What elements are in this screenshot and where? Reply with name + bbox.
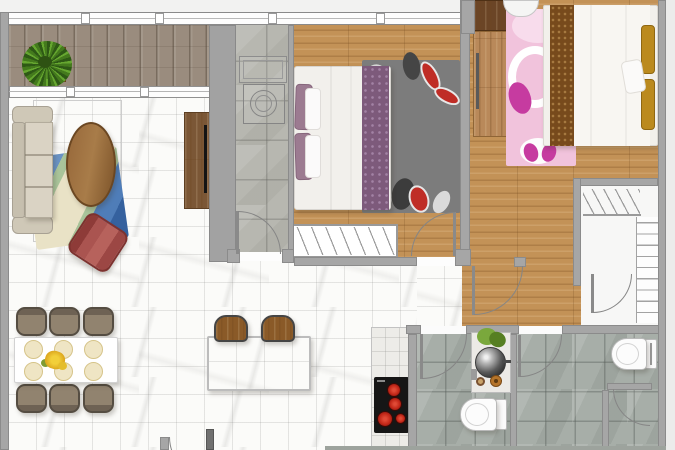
wall-balcony-window bbox=[9, 86, 236, 98]
toilet-1-seat bbox=[465, 403, 489, 426]
wall-closet-top bbox=[573, 178, 658, 186]
burner-2 bbox=[388, 397, 402, 411]
bed2-fold-1 bbox=[590, 5, 592, 146]
bed1-runner bbox=[362, 66, 389, 210]
cooktop-knobs bbox=[377, 380, 385, 382]
bedroom2-wardrobe-handle bbox=[476, 53, 479, 109]
wall-south-c bbox=[562, 325, 666, 334]
balcony-mullion-2 bbox=[140, 87, 149, 97]
closet-hanging-hatch bbox=[583, 189, 640, 214]
bar-chair-1 bbox=[214, 315, 248, 342]
coffee-table bbox=[66, 122, 116, 207]
closet-shelves bbox=[636, 217, 658, 323]
plate-6 bbox=[84, 362, 103, 381]
wall-balcony-window-midline bbox=[9, 91, 236, 92]
burner-3 bbox=[377, 411, 393, 427]
outside-right bbox=[666, 0, 675, 450]
plate-4 bbox=[24, 362, 43, 381]
burner-1 bbox=[387, 383, 401, 397]
sofa-cushion-line-1 bbox=[25, 154, 53, 156]
entrance-jamb bbox=[160, 437, 169, 450]
dining-chair-6 bbox=[83, 384, 114, 413]
plate-3 bbox=[84, 340, 103, 359]
window-mullion-2 bbox=[155, 13, 164, 24]
bed2-pillow-gold-1 bbox=[641, 25, 655, 74]
door-arc-entrance bbox=[169, 437, 211, 450]
dining-chair-2 bbox=[49, 307, 80, 336]
balcony-mullion-1 bbox=[66, 87, 75, 97]
dining-chair-5 bbox=[49, 384, 80, 413]
vanity-soap bbox=[471, 369, 477, 380]
bed1-fold-1 bbox=[330, 66, 332, 210]
closet-rail bbox=[583, 214, 641, 216]
bed1-fold-2 bbox=[350, 66, 352, 210]
threshold-bedroom1 bbox=[417, 257, 455, 266]
wall-closet-left bbox=[573, 178, 581, 286]
toilet-2-tank-line bbox=[650, 343, 652, 365]
threshold-bathroom1 bbox=[421, 326, 466, 334]
bed2-runner bbox=[550, 5, 574, 146]
floor-hall-marble bbox=[417, 257, 462, 334]
dining-chair-4 bbox=[16, 384, 47, 413]
wall-right bbox=[658, 0, 666, 450]
vanity-tap bbox=[502, 360, 511, 363]
wall-top-window-midline bbox=[0, 18, 463, 19]
wall-bath-divider bbox=[510, 334, 517, 450]
dining-chair-3 bbox=[83, 307, 114, 336]
wall-kitchen-bath bbox=[408, 334, 417, 450]
bed1-pillow-white-2 bbox=[305, 135, 321, 178]
threshold-bathroom2 bbox=[519, 326, 562, 334]
wall-bedroom-divider bbox=[460, 0, 470, 266]
washing-machine-drum-inner bbox=[255, 95, 272, 112]
floor-plan bbox=[0, 0, 675, 450]
wall-top-right-piece bbox=[461, 0, 475, 34]
window-mullion-1 bbox=[81, 13, 90, 24]
vanity-jar-b-lid bbox=[494, 379, 498, 383]
wall-utility-bedroom1 bbox=[288, 25, 294, 258]
wall-utility-cap-right bbox=[282, 249, 294, 263]
wall-bottom-sliver bbox=[325, 446, 666, 450]
wall-column bbox=[209, 25, 236, 262]
dining-chair-1 bbox=[16, 307, 47, 336]
sofa-seat bbox=[25, 122, 53, 218]
window-mullion-3 bbox=[268, 13, 277, 24]
sofa-armrest-bottom bbox=[12, 216, 53, 234]
window-mullion-4 bbox=[376, 13, 385, 24]
burner-4 bbox=[395, 413, 406, 424]
sofa-cushion-line-2 bbox=[25, 186, 53, 188]
plate-1 bbox=[24, 340, 43, 359]
bedroom2-cabinet bbox=[473, 0, 507, 31]
wall-south-a bbox=[406, 325, 421, 334]
bedroom1-wardrobe-hatch bbox=[295, 227, 395, 255]
tv-screen bbox=[204, 125, 207, 193]
wall-left bbox=[0, 12, 9, 450]
balcony-plant-core bbox=[38, 56, 52, 68]
bed1-pillow-white-1 bbox=[305, 88, 321, 130]
vanity-jar-a bbox=[476, 377, 485, 386]
wall-bedroom1-south bbox=[294, 257, 417, 266]
utility-counter-inner bbox=[243, 60, 283, 79]
wall-bedroom-divider-cap bbox=[455, 249, 471, 266]
kitchen-island bbox=[207, 336, 311, 391]
wall-shower-b bbox=[602, 390, 609, 450]
centerpiece-flower-small bbox=[58, 362, 67, 370]
sofa-backrest bbox=[12, 122, 25, 218]
toilet-2-seat bbox=[616, 343, 639, 365]
bar-chair-2 bbox=[261, 315, 295, 342]
